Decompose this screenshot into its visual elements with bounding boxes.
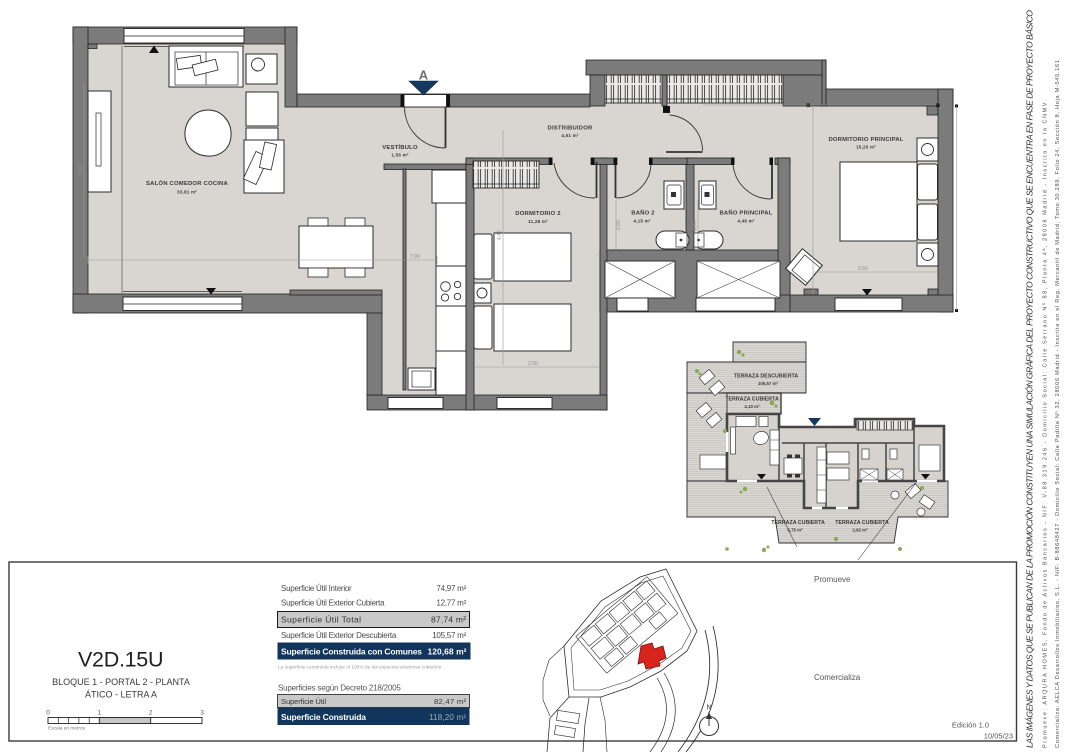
svg-text:3,50: 3,50 [858,266,868,272]
svg-text:Superficie Útil Exterior Descu: Superficie Útil Exterior Descubierta [281,631,397,640]
svg-text:DISTRIBUIDOR: DISTRIBUIDOR [548,126,593,132]
svg-text:LAS IMÁGENES Y DATOS QUE SE PU: LAS IMÁGENES Y DATOS QUE SE PUBLICAN DE … [1025,10,1035,748]
svg-text:DORMITORIO 2: DORMITORIO 2 [515,211,561,217]
svg-text:Superficie Útil: Superficie Útil [281,697,326,706]
svg-text:Promueve: Promueve [814,575,851,584]
svg-text:Promueve: ARQURA HOMES, Fondo: Promueve: ARQURA HOMES, Fondo de Activos… [1042,100,1049,748]
svg-text:5,55: 5,55 [78,165,84,175]
svg-text:SALÓN COMEDOR COCINA: SALÓN COMEDOR COCINA [146,179,228,187]
svg-text:ÁTICO - LETRA A: ÁTICO - LETRA A [85,690,157,700]
svg-text:3: 3 [200,710,204,717]
svg-text:Comercializa: AELCA Desarrollo: Comercializa: AELCA Desarrollos Inmobili… [1054,60,1061,748]
svg-text:N: N [706,705,711,712]
svg-text:4,15 m²: 4,15 m² [633,219,651,224]
svg-text:TERRAZA CUBIERTA: TERRAZA CUBIERTA [835,520,889,526]
svg-text:Superficie Útil Exterior Cubie: Superficie Útil Exterior Cubierta [281,599,385,608]
svg-text:4,51 m²: 4,51 m² [561,133,579,138]
svg-text:1: 1 [97,710,101,717]
svg-text:7,90: 7,90 [410,254,420,260]
svg-text:BAÑO 2: BAÑO 2 [631,210,655,217]
svg-text:VESTÍBULO: VESTÍBULO [382,143,418,151]
svg-text:87,74 m²: 87,74 m² [431,615,466,625]
svg-text:BAÑO PRINCIPAL: BAÑO PRINCIPAL [719,210,772,217]
svg-text:Superficie Útil Total: Superficie Útil Total [281,615,361,625]
svg-text:74,97 m²: 74,97 m² [436,584,466,593]
svg-text:2,60: 2,60 [616,220,622,230]
svg-text:4,46: 4,46 [497,230,503,240]
svg-text:82,47 m²: 82,47 m² [434,697,466,706]
svg-text:Escala en metros: Escala en metros [48,726,86,732]
svg-text:BLOQUE 1 - PORTAL 2 - PLANTA: BLOQUE 1 - PORTAL 2 - PLANTA [52,677,190,687]
svg-text:10/05/23: 10/05/23 [984,732,1013,741]
svg-text:4,46 m²: 4,46 m² [737,219,755,224]
svg-text:11,28 m²: 11,28 m² [528,219,548,224]
svg-text:Superficie Construida: Superficie Construida [281,712,366,722]
svg-text:A: A [419,68,429,83]
svg-text:5,75 m²: 5,75 m² [787,528,803,533]
svg-text:TERRAZA CUBIERTA: TERRAZA CUBIERTA [725,397,779,403]
svg-text:TERRAZA CUBIERTA: TERRAZA CUBIERTA [771,520,825,526]
svg-text:1,56 m²: 1,56 m² [391,153,409,158]
svg-text:DORMITORIO PRINCIPAL: DORMITORIO PRINCIPAL [828,137,903,143]
svg-text:Superficie Útil Interior: Superficie Útil Interior [281,584,352,593]
svg-text:12,77 m²: 12,77 m² [436,599,466,608]
svg-text:Comercializa: Comercializa [814,673,861,682]
svg-text:15,20 m²: 15,20 m² [856,145,876,150]
svg-text:V2D.15U: V2D.15U [78,648,164,672]
svg-text:33,81 m²: 33,81 m² [177,190,197,195]
svg-text:Edición 1.0: Edición 1.0 [952,721,989,730]
svg-text:105,57 m²: 105,57 m² [758,381,779,386]
svg-text:120,68 m²: 120,68 m² [428,647,467,657]
svg-text:0: 0 [46,710,50,717]
svg-text:2,92 m²: 2,92 m² [852,528,868,533]
svg-text:Superficie Construida con Comu: Superficie Construida con Comunes [281,647,422,657]
svg-text:105,57 m²: 105,57 m² [432,631,466,640]
svg-text:4,10 m²: 4,10 m² [744,404,760,409]
svg-text:2: 2 [149,710,153,717]
svg-text:La superficie construida inclu: La superficie construida incluye el 100%… [278,664,442,670]
svg-text:Superficies según Decreto 218/: Superficies según Decreto 218/2005 [278,683,401,692]
svg-text:118,20 m²: 118,20 m² [429,713,466,722]
svg-text:TERRAZA DESCUBIERTA: TERRAZA DESCUBIERTA [734,374,799,380]
svg-text:2,50: 2,50 [528,361,538,367]
svg-text:2,60: 2,60 [692,220,698,230]
